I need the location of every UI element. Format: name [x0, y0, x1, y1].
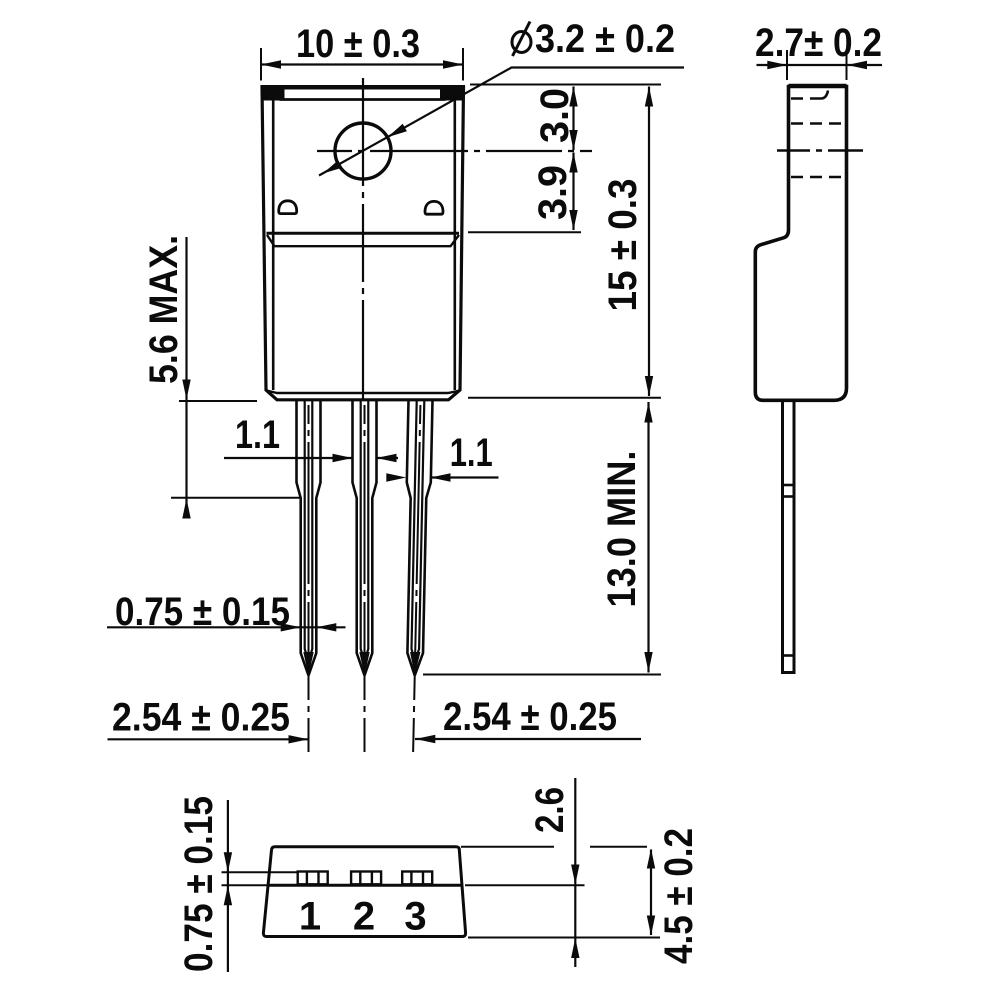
- svg-text:4.5 ± 0.2: 4.5 ± 0.2: [657, 828, 701, 964]
- svg-text:1: 1: [299, 895, 321, 939]
- svg-text:1.1: 1.1: [235, 413, 280, 457]
- svg-text:13.0 MIN.: 13.0 MIN.: [600, 451, 644, 608]
- svg-text:5.6 MAX.: 5.6 MAX.: [142, 235, 186, 384]
- svg-text:15 ± 0.3: 15 ± 0.3: [601, 179, 645, 312]
- svg-text:2.6: 2.6: [528, 787, 572, 833]
- svg-text:2.7± 0.2: 2.7± 0.2: [755, 21, 882, 65]
- svg-text:0.75 ± 0.15: 0.75 ± 0.15: [177, 796, 221, 972]
- svg-text:1.1: 1.1: [450, 431, 493, 475]
- svg-text:2: 2: [353, 895, 375, 939]
- svg-text:10 ± 0.3: 10 ± 0.3: [296, 22, 420, 66]
- svg-text:3.9: 3.9: [531, 165, 575, 220]
- svg-text:3.2 ± 0.2: 3.2 ± 0.2: [535, 17, 675, 61]
- svg-text:2.54 ± 0.25: 2.54 ± 0.25: [112, 696, 290, 740]
- svg-text:2.54 ± 0.25: 2.54 ± 0.25: [443, 695, 617, 739]
- svg-text:3: 3: [404, 895, 426, 939]
